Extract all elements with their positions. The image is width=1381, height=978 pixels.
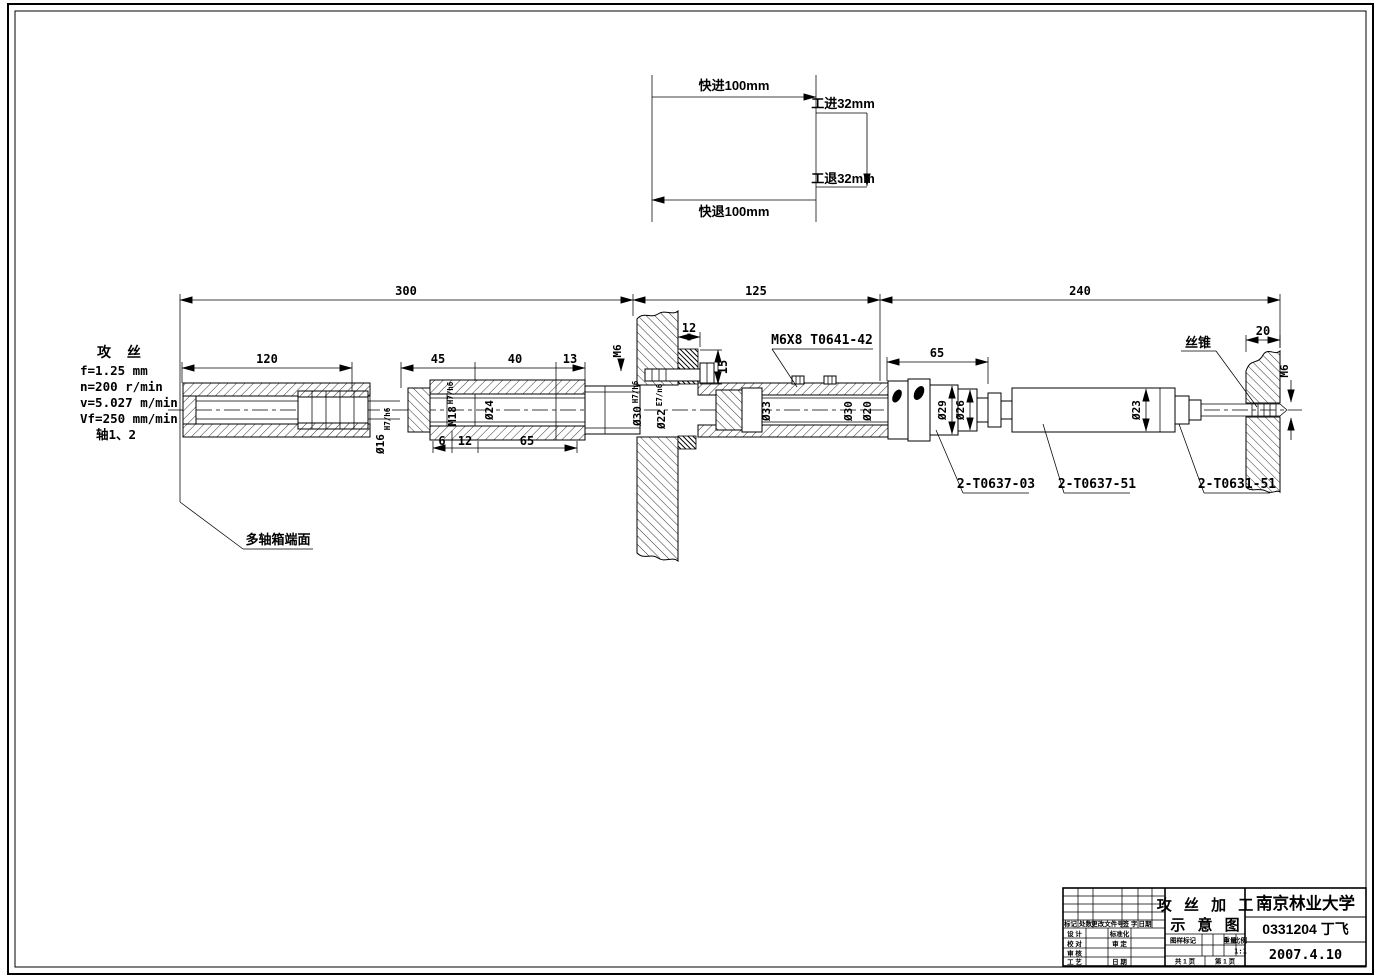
dia-22-fit: E7/n6 bbox=[655, 383, 664, 406]
outer-border bbox=[8, 4, 1373, 974]
rev-mark-label: 标记 bbox=[1063, 919, 1078, 928]
role-design-label: 设 计 bbox=[1067, 929, 1082, 938]
dim-65: 65 bbox=[520, 434, 534, 448]
process-title: 攻 丝 bbox=[97, 344, 147, 360]
dim-125: 125 bbox=[745, 284, 767, 298]
stud-shaft bbox=[645, 369, 702, 381]
sheet-number-label: 第 1 页 bbox=[1215, 957, 1236, 966]
m18-fit: H7/h6 bbox=[446, 381, 455, 404]
chuck-collet bbox=[888, 379, 1012, 441]
dim-20: 20 bbox=[1256, 324, 1270, 338]
coupling-top-strip bbox=[298, 391, 368, 397]
speed-note: n=200 r/min bbox=[80, 379, 163, 394]
tap-holder-and-workpiece bbox=[1012, 351, 1287, 492]
rapid-return-label: 快退100mm bbox=[699, 204, 770, 219]
dim-12: 12 bbox=[458, 434, 472, 448]
velocity-note: v=5.027 m/min bbox=[80, 395, 178, 410]
inner-border bbox=[15, 11, 1366, 967]
dia-26-label: Ø26 bbox=[954, 400, 967, 421]
rev-signature-label: 签 字 bbox=[1122, 919, 1138, 928]
dim-300: 300 bbox=[395, 284, 417, 298]
sheet-total-label: 共 1 页 bbox=[1175, 957, 1196, 966]
housing-end-cap bbox=[183, 396, 196, 424]
feedrate-note: Vf=250 mm/min bbox=[80, 411, 178, 426]
part2-callout: 2-T0637-51 bbox=[1058, 477, 1136, 492]
title-block: 标记 处数 更改文件号 签 字 日期 设 计 校 对 审 核 工 艺 标准化 审… bbox=[1063, 888, 1366, 966]
part3-callout: 2-T0631-51 bbox=[1198, 477, 1276, 492]
holder-nut bbox=[1175, 396, 1189, 424]
stamp-scale-value: 1:1 bbox=[1234, 948, 1247, 956]
dia-16-fit: H7/h6 bbox=[383, 407, 392, 430]
axes-note: 轴1、2 bbox=[96, 427, 136, 442]
drawing-date: 2007.4.10 bbox=[1269, 947, 1342, 963]
process-notes: 攻 丝 f=1.25 mm n=200 r/min v=5.027 m/min … bbox=[80, 344, 178, 442]
set-screw-leader bbox=[772, 349, 873, 387]
drawing-title-line1: 攻 丝 加 工 bbox=[1157, 896, 1258, 914]
dia-30-right-label: Ø30 bbox=[842, 401, 855, 422]
dim-65-right: 65 bbox=[930, 346, 944, 360]
set-screw-callout: M6X8 T0641-42 bbox=[771, 333, 873, 348]
role-process-label: 工 艺 bbox=[1067, 957, 1082, 966]
work-retract-label: 工退32mm bbox=[811, 171, 875, 186]
coupling-bottom-strip bbox=[298, 423, 368, 429]
dim-240: 240 bbox=[1069, 284, 1091, 298]
drawing-sheet: 快进100mm 工进32mm 工退32mm 快退100mm 攻 丝 f=1.25… bbox=[0, 0, 1381, 978]
dim-15-plate: 15 bbox=[716, 360, 730, 374]
role-standardize-label: 标准化 bbox=[1109, 929, 1130, 938]
drawing-title-line2: 示 意 图 bbox=[1170, 916, 1243, 934]
rapid-advance-label: 快进100mm bbox=[699, 78, 770, 93]
m18-label: M18 bbox=[446, 406, 459, 426]
collet-flange bbox=[988, 393, 1001, 427]
role-proofread-label: 校 对 bbox=[1067, 939, 1082, 948]
spindle-box-face-callout: 多轴箱端面 bbox=[245, 532, 310, 547]
collet-neck-2 bbox=[1001, 401, 1012, 419]
role-date-label: 日 期 bbox=[1112, 957, 1127, 966]
dia-22-label: Ø22 bbox=[655, 409, 668, 430]
dia-30-left-label: Ø30 bbox=[631, 406, 644, 427]
m6-plate-label: M6 bbox=[611, 344, 624, 358]
dim-120: 120 bbox=[256, 352, 278, 366]
plate-lower bbox=[637, 437, 678, 561]
dim-12-plate: 12 bbox=[682, 321, 696, 335]
dia-16-label: Ø16 bbox=[374, 434, 387, 455]
dim-6: 6 bbox=[438, 434, 445, 448]
chuck-ring-1 bbox=[888, 381, 908, 439]
ext-65-right bbox=[887, 357, 988, 384]
sleeve-nut bbox=[408, 388, 430, 432]
cad-drawing-canvas: 快进100mm 工进32mm 工退32mm 快退100mm 攻 丝 f=1.25… bbox=[0, 0, 1381, 978]
workpiece-upper bbox=[1246, 351, 1280, 403]
dia-24-label: Ø24 bbox=[483, 400, 496, 421]
dia-23-label: Ø23 bbox=[1130, 400, 1143, 421]
bearing-collar bbox=[716, 390, 742, 430]
collar-ring bbox=[742, 388, 762, 432]
role-review-label: 审 核 bbox=[1067, 949, 1082, 958]
dim-13: 13 bbox=[563, 352, 577, 366]
tapping-sleeve bbox=[698, 376, 888, 439]
dia-29-label: Ø29 bbox=[936, 400, 949, 421]
m6-workpiece-label: M6 bbox=[1278, 364, 1291, 378]
work-feed-label: 工进32mm bbox=[811, 96, 875, 111]
author-name: 0331204 丁飞 bbox=[1262, 921, 1348, 937]
part1-callout: 2-T0637-03 bbox=[957, 477, 1035, 492]
rev-date-label: 日期 bbox=[1139, 919, 1153, 928]
role-approve-label: 审 定 bbox=[1112, 939, 1127, 948]
holder-rod bbox=[1012, 388, 1175, 432]
sleeve-bottom-wall bbox=[430, 426, 585, 440]
rev-changedoc-label: 更改文件号 bbox=[1091, 919, 1124, 928]
dim-45: 45 bbox=[431, 352, 445, 366]
dim-40: 40 bbox=[508, 352, 522, 366]
dia-20-label: Ø20 bbox=[861, 401, 874, 422]
motion-cycle-diagram: 快进100mm 工进32mm 工退32mm 快退100mm bbox=[652, 75, 875, 222]
seal-block-lower bbox=[678, 436, 696, 449]
feed-note: f=1.25 mm bbox=[80, 363, 148, 378]
holder-bush bbox=[1189, 400, 1201, 420]
collet-neck bbox=[977, 398, 988, 422]
tap-callout: 丝锥 bbox=[1185, 335, 1211, 350]
stamp-drawing-mark-label: 图样标记 bbox=[1170, 936, 1197, 945]
dia-30-left-fit: H7/h6 bbox=[631, 380, 640, 403]
dia-33-label: Ø33 bbox=[760, 401, 773, 422]
stamp-scale-label: 比例 bbox=[1234, 936, 1248, 945]
set-screw-2 bbox=[824, 376, 836, 384]
organization-name: 南京林业大学 bbox=[1256, 893, 1355, 913]
